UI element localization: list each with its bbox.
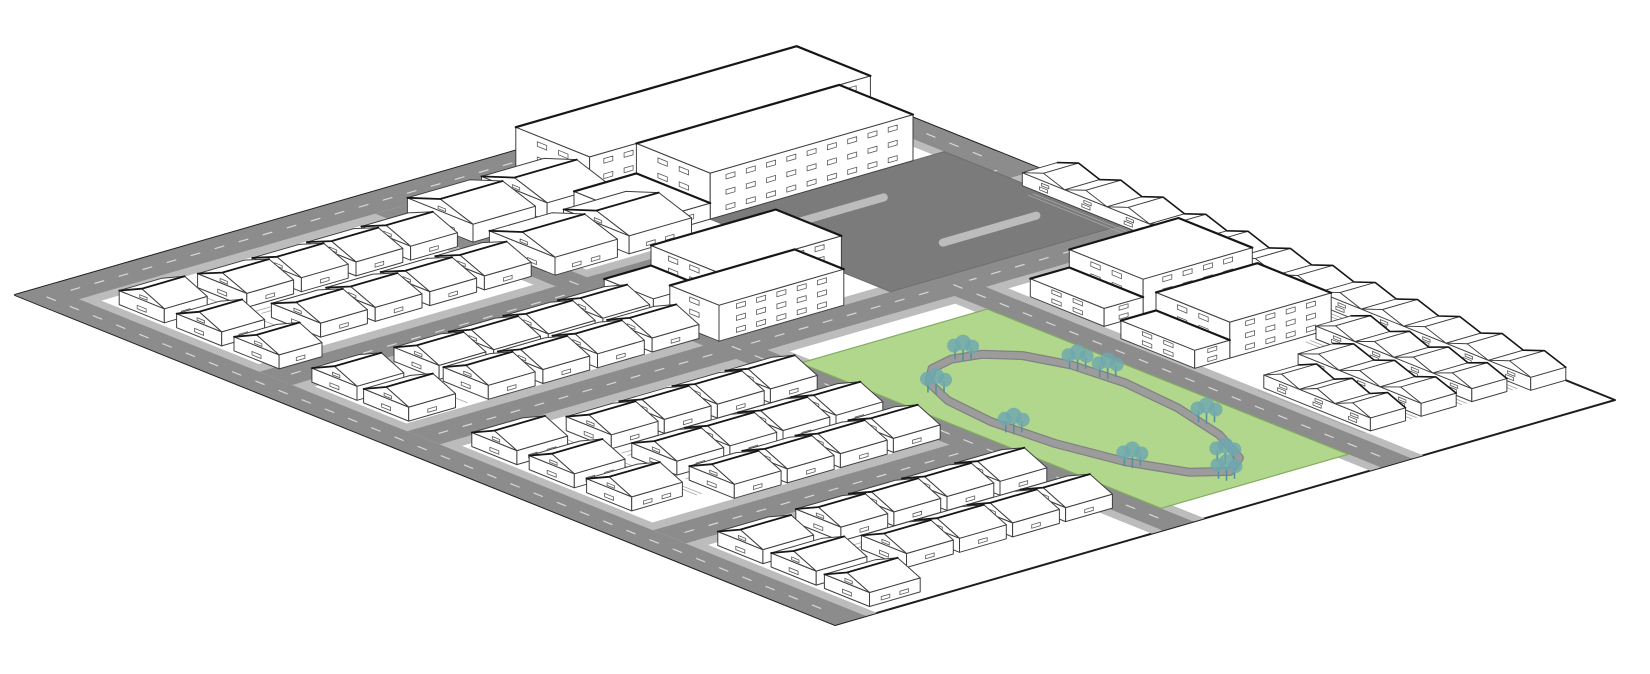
- masterplan-diagram: Axonometric masterplan diagram of a neig…: [0, 0, 1650, 674]
- axonometric-scene: [0, 0, 1650, 674]
